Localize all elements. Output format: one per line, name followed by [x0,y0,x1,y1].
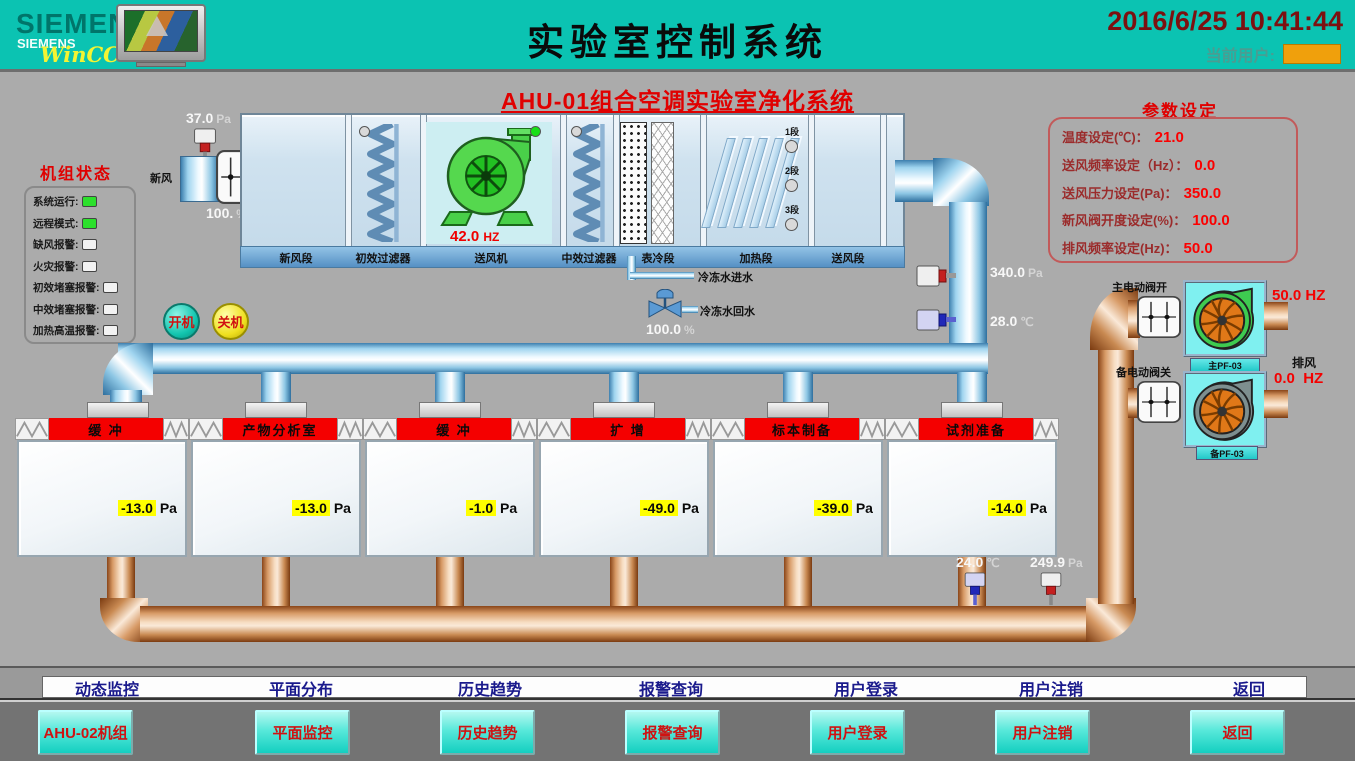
status-remote: 远程模式: [33,216,130,231]
hepa-outlet [163,418,189,440]
menu-item-floor-layout[interactable]: 平面分布 [269,676,333,700]
backup-exhaust-fan[interactable] [1183,371,1267,448]
supply-stub [957,372,987,404]
section-label-supplyfan: 送风机 [475,250,508,266]
nav-button-user-login[interactable]: 用户登录 [810,710,905,755]
datetime-display: 2016/6/25 10:41:44 [1107,6,1343,37]
nav-button-bar: AHU-02机组 平面监控 历史趋势 报警查询 用户登录 用户注销 返回 [0,700,1355,761]
status-airloss-indicator [82,239,97,250]
room-pressure-reading: -49.0 Pa [640,500,699,516]
nav-button-user-logout[interactable]: 用户注销 [995,710,1090,755]
supply-elbow-top [933,158,989,206]
status-midfilter-indicator [103,304,118,315]
nav-button-ahu02[interactable]: AHU-02机组 [38,710,133,755]
ahu-section-divider [345,115,352,246]
backup-valve-label: 备电动阀关 [1116,364,1171,380]
return-pressure-sensor-icon [1038,572,1064,606]
room-pressure-reading: -1.0 Pa [466,500,517,516]
hepa-outlet [337,418,363,440]
param-value-supply-freq[interactable]: 0.0 [1194,157,1215,174]
ahu-section-divider [613,115,620,246]
chilled-water-out-label: 冷冻水回水 [700,303,755,319]
room-buffer-2: 缓 冲 -1.0 Pa [363,418,537,557]
room-pressure-reading: -39.0 Pa [814,500,873,516]
status-remote-indicator [82,218,97,229]
supply-pressure-sensor-icon [916,262,956,290]
duct-flange [767,402,829,418]
menu-item-alarm-query[interactable]: 报警查询 [639,676,703,700]
main-fan-nameplate: 主PF-03 [1190,358,1260,372]
main-exhaust-damper[interactable] [1137,296,1181,338]
exhaust-elbow-right [1086,598,1136,642]
hepa-outlet [537,418,571,440]
hmi-screen: SIEMENS SIEMENS WinCC 实验室控制系统 2016/6/25 … [0,0,1355,761]
prefilter-pleats [362,124,402,242]
menu-item-return[interactable]: 返回 [1233,676,1265,700]
status-panel: 系统运行: 远程模式: 缺风报警: 火灾报警: 初效堵塞报警: 中效堵塞报警: … [24,186,136,344]
nav-button-return[interactable]: 返回 [1190,710,1285,755]
exhaust-stub [784,557,812,607]
room-banner: 产物分析室 [223,418,337,440]
menu-item-dynamic-monitor[interactable]: 动态监控 [75,676,139,700]
supply-stub [435,372,465,404]
room-pressure-reading: -13.0 Pa [118,500,177,516]
param-row-exhaust-freq: 排风频率设定(Hz)：50.0 [1062,238,1286,257]
param-row-supply-pressure: 送风压力设定(Pa)：350.0 [1062,183,1286,202]
header-bar: SIEMENS SIEMENS WinCC 实验室控制系统 2016/6/25 … [0,0,1355,72]
room-body [887,440,1057,557]
room-buffer-1: 缓 冲 -13.0 Pa [15,418,189,557]
supply-stub [609,372,639,404]
inlet-pressure-reading: 37.0Pa [186,110,231,126]
chilled-water-in-label: 冷冻水进水 [698,269,753,285]
exhaust-air-label: 排风 [1292,354,1316,371]
room-banner: 扩 增 [571,418,685,440]
hepa-outlet [885,418,919,440]
backup-fan-frequency: 0.0 HZ [1274,370,1323,387]
menu-bar: 动态监控 平面分布 历史趋势 报警查询 用户登录 用户注销 返回 [0,666,1355,700]
params-panel: 温度设定(℃)：21.0 送风频率设定（Hz）：0.0 送风压力设定(Pa)：3… [1048,117,1298,263]
exhaust-main-pipe [140,606,1100,642]
supply-elbow-left [103,343,153,395]
status-panel-title: 机组状态 [40,160,112,184]
supply-main-pipe [118,343,988,374]
prefilter-indicator [359,126,370,137]
param-value-temp[interactable]: 21.0 [1155,129,1184,146]
room-pressure-reading: -13.0 Pa [292,500,351,516]
section-label-supply: 送风段 [832,250,865,266]
valve-opening-reading: 100.0% [646,321,695,337]
param-value-damper-open[interactable]: 100.0 [1192,212,1230,229]
room-body [17,440,187,557]
main-exhaust-fan[interactable] [1183,280,1267,357]
param-value-supply-pressure[interactable]: 350.0 [1184,185,1222,202]
supply-fan-frequency: 42.0 HZ [450,228,499,245]
menu-item-user-logout[interactable]: 用户注销 [1019,676,1083,700]
status-prefilter-indicator [103,282,118,293]
hepa-outlet [15,418,49,440]
menu-item-user-login[interactable]: 用户登录 [834,676,898,700]
current-user-label: 当前用户: [1206,42,1275,66]
hepa-outlet [189,418,223,440]
room-body [191,440,361,557]
heater-stage-2: 2段 [785,164,815,192]
hepa-outlet [685,418,711,440]
heater-stage-2-indicator [785,179,798,192]
status-midfilter-clog: 中效堵塞报警: [33,302,130,317]
heater-stage-3-indicator [785,218,798,231]
nav-button-alarm-query[interactable]: 报警查询 [625,710,720,755]
duct-flange [941,402,1003,418]
return-pressure-reading: 249.9Pa [1030,554,1083,570]
exhaust-stub [262,557,290,607]
cooling-coil [620,122,647,244]
main-fan-frequency: 50.0 HZ [1272,287,1325,304]
param-row-supply-freq: 送风频率设定（Hz）：0.0 [1062,155,1286,174]
param-row-temp: 温度设定(℃)：21.0 [1062,127,1286,146]
cooling-lattice [651,122,674,244]
main-fan-outlet [1264,302,1288,330]
room-amplification: 扩 增 -49.0 Pa [537,418,711,557]
section-label-prefilter: 初效过滤器 [356,250,411,266]
room-banner: 缓 冲 [397,418,511,440]
param-row-damper-open: 新风阀开度设定(%)：100.0 [1062,210,1286,229]
hepa-outlet [1033,418,1059,440]
room-banner: 缓 冲 [49,418,163,440]
menu-item-history-trend[interactable]: 历史趋势 [458,676,522,700]
heater-plates [714,138,794,236]
hepa-outlet [859,418,885,440]
nav-button-history-trend[interactable]: 历史趋势 [440,710,535,755]
start-button[interactable]: 开机 [163,303,200,340]
duct-flange [593,402,655,418]
midfilter-indicator [571,126,582,137]
section-label-heater: 加热段 [740,250,773,266]
nav-button-floor-monitor[interactable]: 平面监控 [255,710,350,755]
ahu-section-label-bar: 新风段 初效过滤器 送风机 中效过滤器 表冷段 加热段 送风段 [240,246,905,268]
exhaust-riser-pipe [1098,346,1134,604]
exhaust-stub [610,557,638,607]
ahu-section-divider [560,115,567,246]
room-specimen-prep: 标本制备 -39.0 Pa [711,418,885,557]
midfilter-pleats [568,124,608,242]
exhaust-stub [436,557,464,607]
return-temp-reading: 24.0℃ [956,554,1000,570]
chilled-water-valve[interactable] [646,289,684,319]
status-prefilter-clog: 初效堵塞报警: [33,280,130,295]
backup-fan-nameplate: 备PF-03 [1196,446,1258,460]
status-overheat: 加热高温报警: [33,323,130,338]
room-reagent-prep: 试剂准备 -14.0 Pa [885,418,1059,557]
room-body [365,440,535,557]
section-label-freshair: 新风段 [280,250,313,266]
duct-flange [245,402,307,418]
room-product-analysis: 产物分析室 -13.0 Pa [189,418,363,557]
duct-flange [419,402,481,418]
supply-stub [783,372,813,404]
room-banner: 试剂准备 [919,418,1033,440]
room-banner: 标本制备 [745,418,859,440]
hepa-outlet [363,418,397,440]
room-body [713,440,883,557]
supply-temp-sensor-icon [916,306,956,334]
param-value-exhaust-freq[interactable]: 50.0 [1184,240,1213,257]
status-fire-indicator [82,261,97,272]
supply-temp-reading: 28.0℃ [990,313,1034,329]
duct-flange [87,402,149,418]
ahu-section-divider [880,115,887,246]
section-label-cooling: 表冷段 [642,250,675,266]
main-valve-label: 主电动阀开 [1112,279,1167,295]
supply-pressure-reading: 340.0Pa [990,264,1043,280]
return-temp-sensor-icon [962,572,988,606]
heater-stage-1: 1段 [785,125,815,153]
heater-stage-1-indicator [785,140,798,153]
status-run-indicator [82,196,97,207]
fresh-air-duct [180,156,220,202]
supply-stub [261,372,291,404]
backup-exhaust-damper[interactable] [1137,381,1181,423]
room-body [539,440,709,557]
status-run: 系统运行: [33,194,130,209]
status-fire: 火灾报警: [33,259,130,274]
hepa-outlet [511,418,537,440]
chilled-water-in-pipe [630,272,694,279]
status-airloss: 缺风报警: [33,237,130,252]
stop-button[interactable]: 关机 [212,303,249,340]
supply-fan-icon[interactable] [432,128,544,228]
fresh-air-label: 新风 [150,170,172,186]
heater-stage-3: 3段 [785,203,815,231]
room-pressure-reading: -14.0 Pa [988,500,1047,516]
backup-fan-outlet [1264,390,1288,418]
current-user-field [1283,44,1341,64]
supply-fan-indicator [530,126,541,137]
chilled-water-out-pipe [682,306,698,313]
section-label-midfilter: 中效过滤器 [562,250,617,266]
hepa-outlet [711,418,745,440]
status-overheat-indicator [103,325,118,336]
